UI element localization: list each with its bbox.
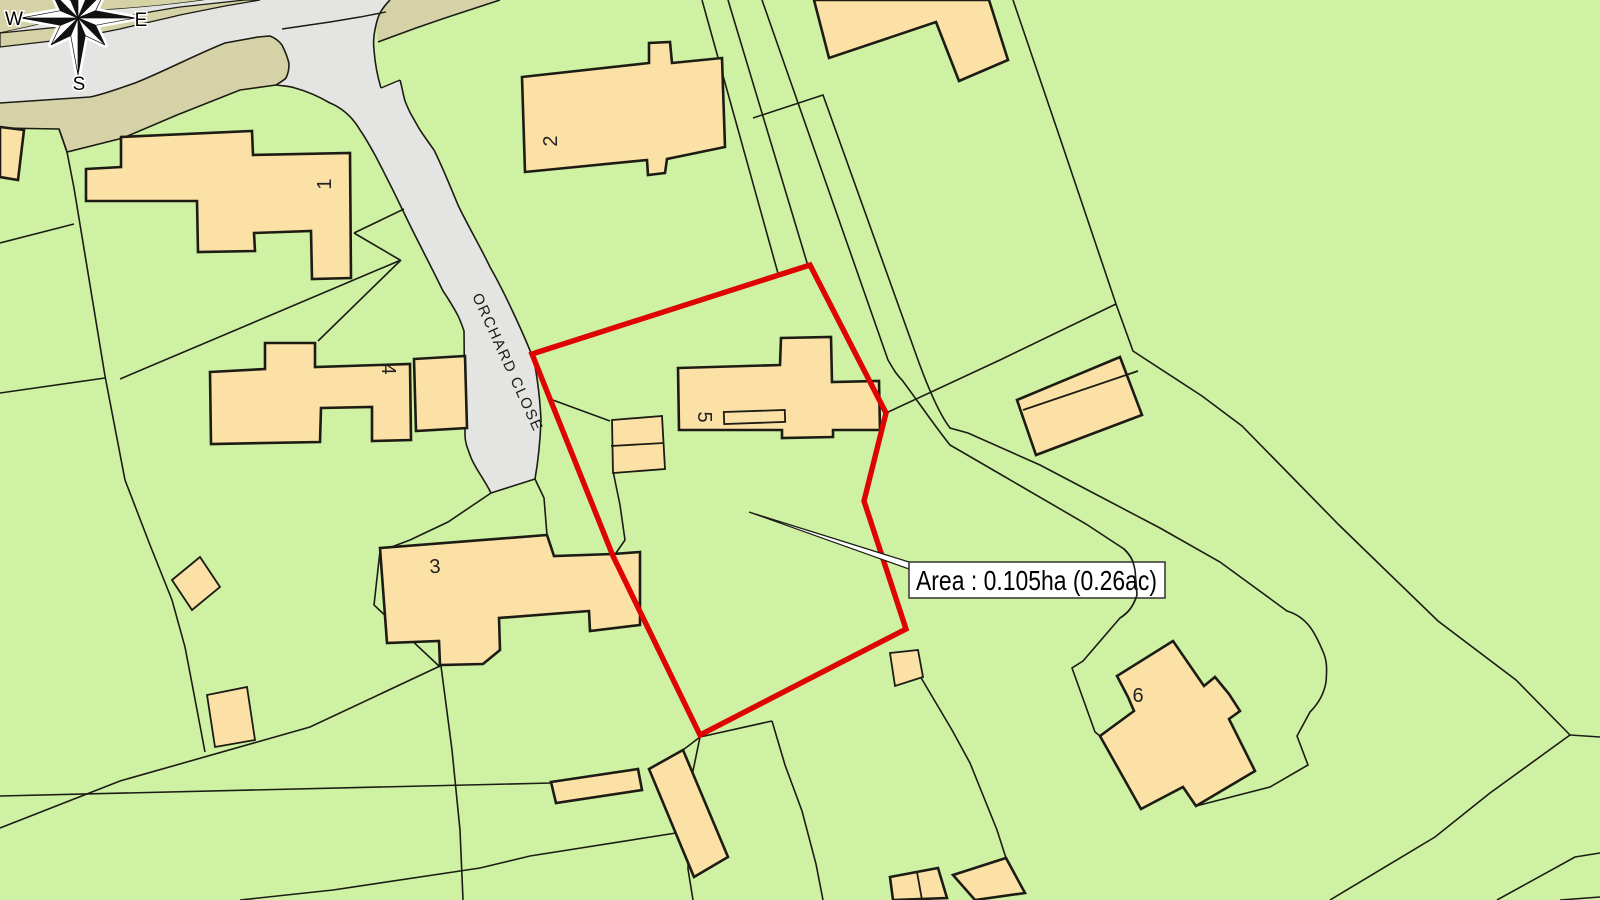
svg-text:6: 6 [1132,685,1143,707]
svg-text:3: 3 [429,556,441,579]
svg-text:5: 5 [693,411,715,422]
svg-text:1: 1 [314,178,336,189]
svg-text:E: E [135,10,148,31]
svg-text:S: S [73,74,86,95]
svg-text:W: W [5,9,23,30]
svg-text:4: 4 [377,363,399,374]
svg-text:Area : 0.105ha (0.26ac): Area : 0.105ha (0.26ac) [916,565,1157,596]
svg-text:2: 2 [540,135,562,146]
